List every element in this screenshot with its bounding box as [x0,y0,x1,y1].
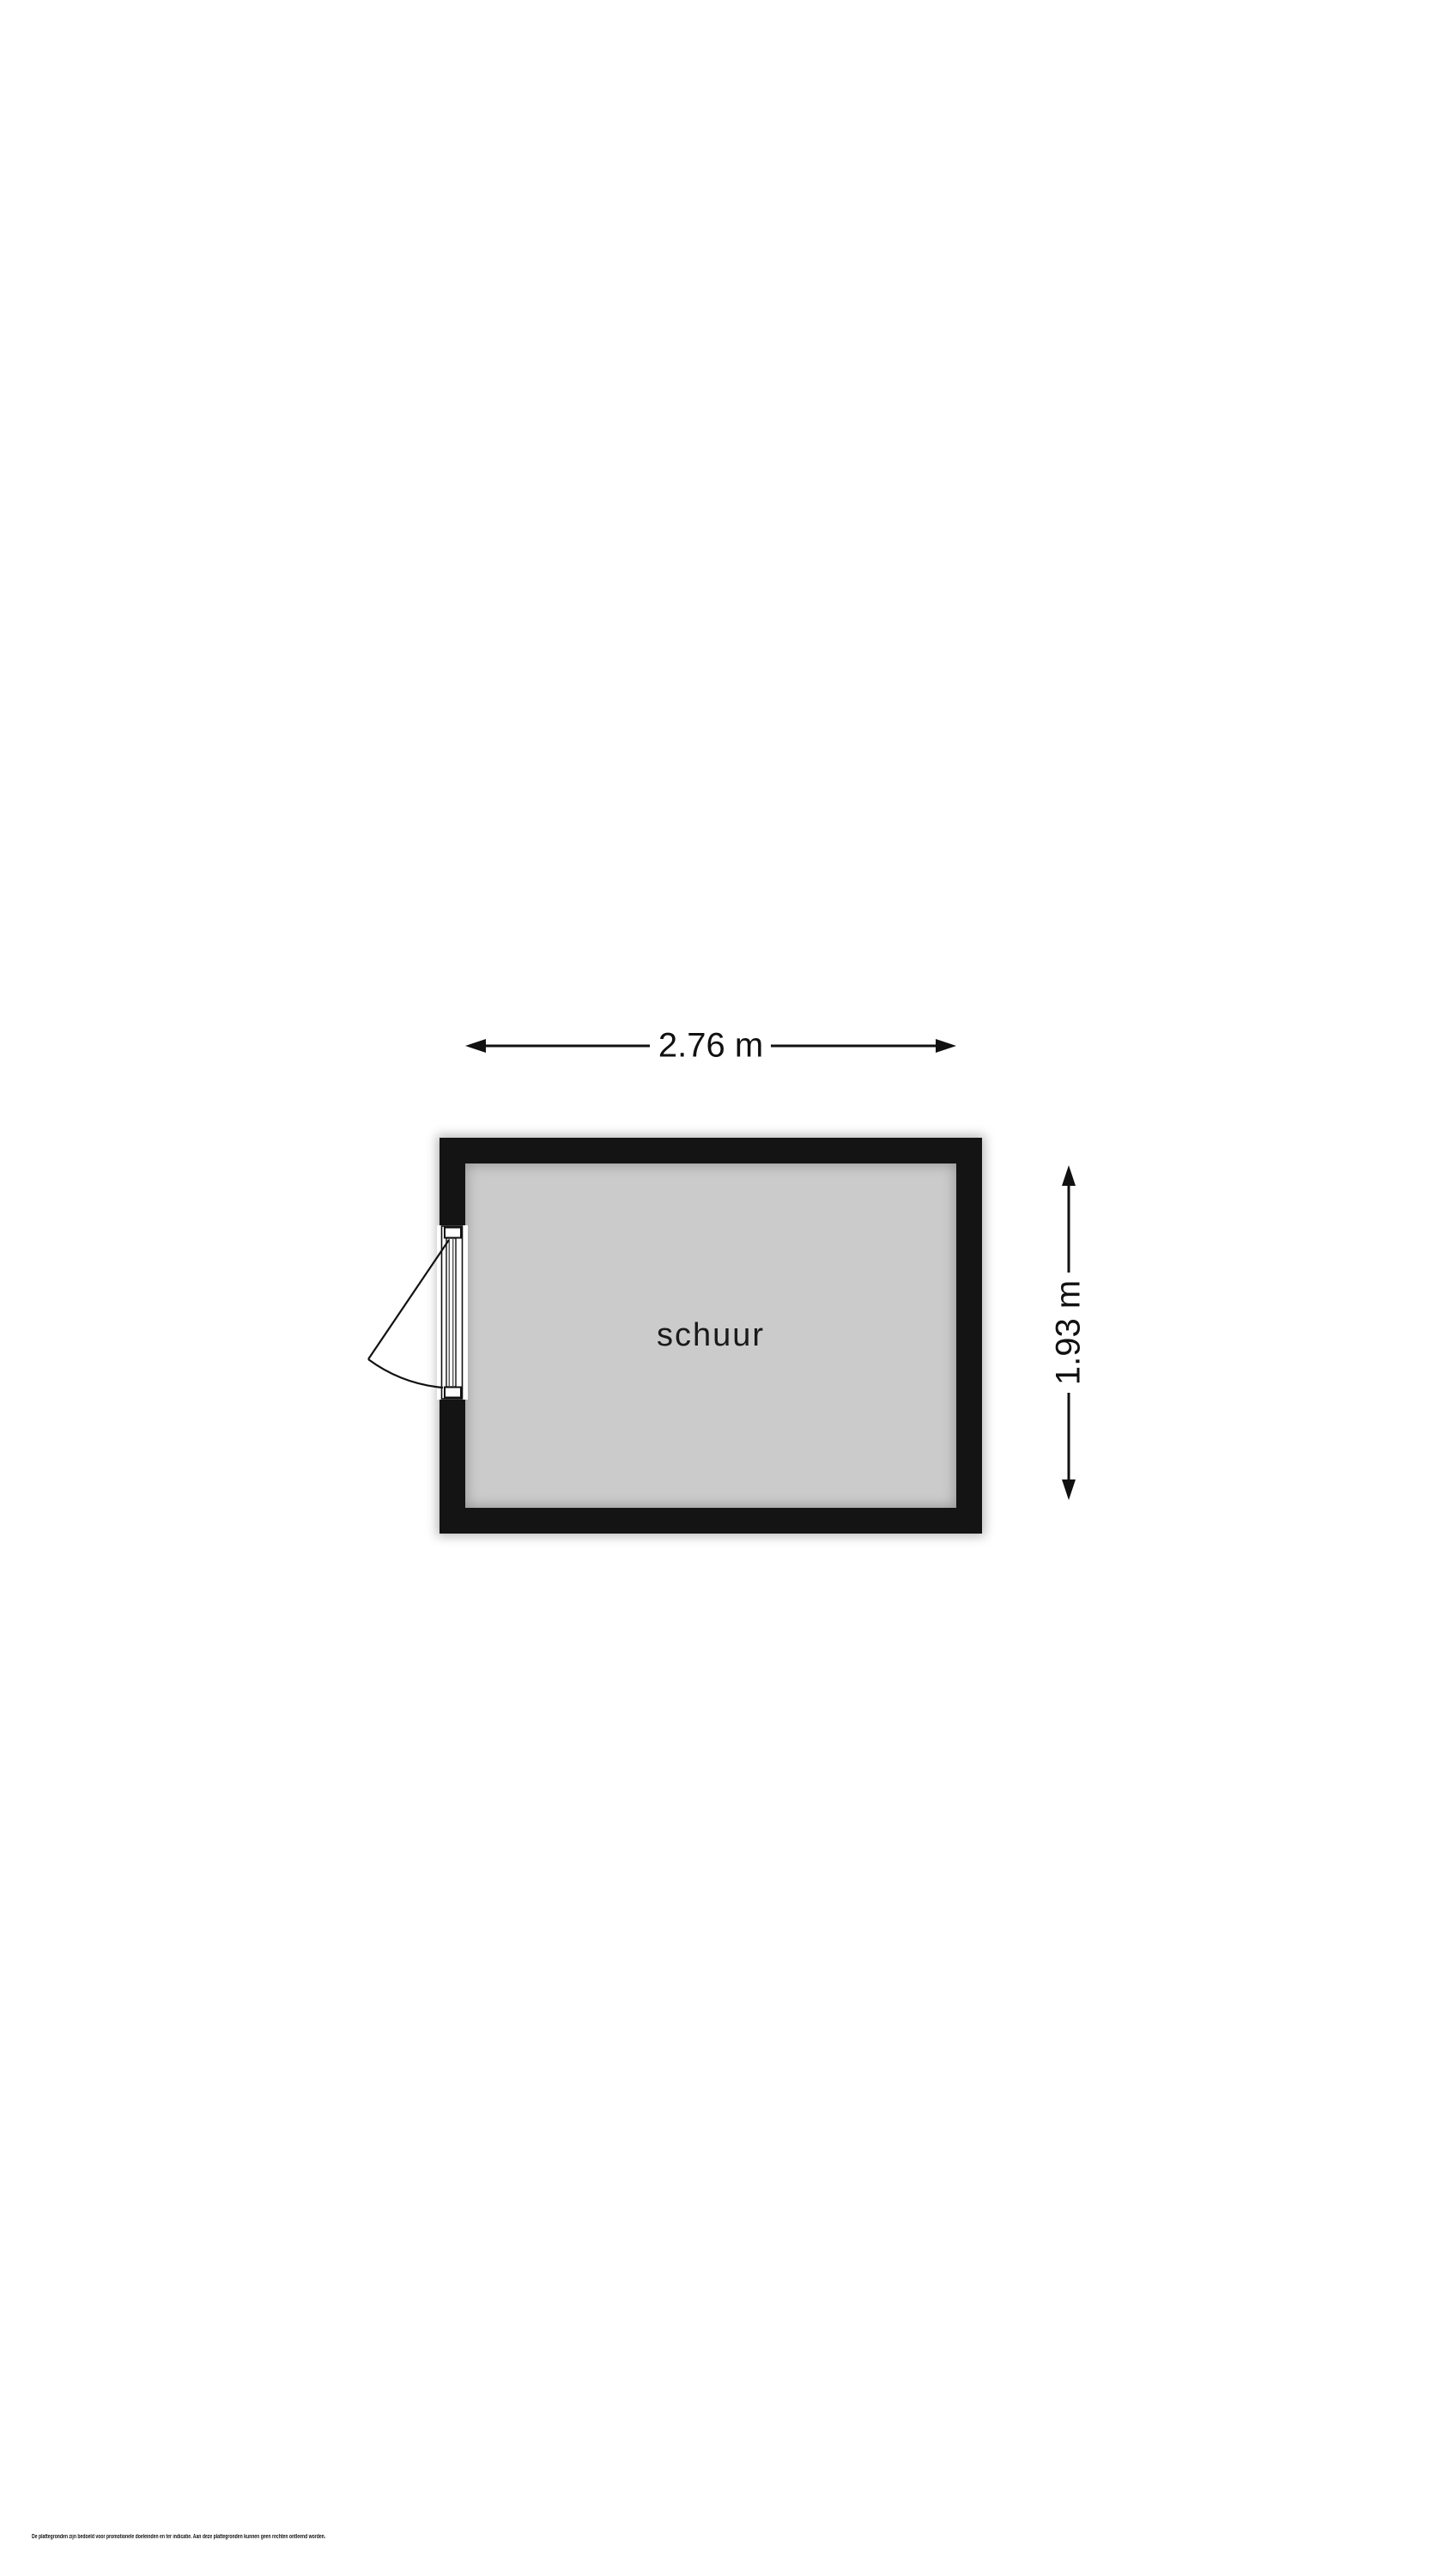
height-arrow-bottom-head-icon [1062,1479,1076,1500]
width-dimension-label: 2.76 m [658,1027,763,1066]
width-arrow-right-head-icon [936,1039,956,1053]
height-dimension-label: 1.93 m [1050,1280,1088,1385]
floorplan-page: schuur 2.76 m 1.93 m De plattegronden zi… [0,0,1449,2576]
dimension-arrows [429,1013,1099,1528]
disclaimer-text: De plattegronden zijn bedoeld voor promo… [32,2534,325,2540]
